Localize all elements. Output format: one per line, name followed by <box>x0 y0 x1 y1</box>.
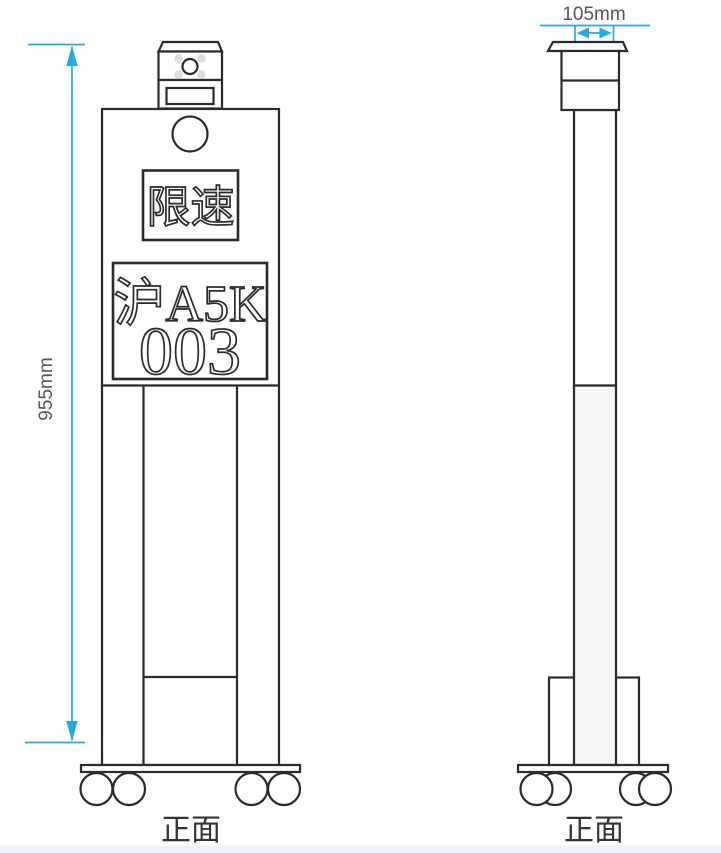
caster-wheel-front <box>639 773 671 805</box>
front-view: 955mm 限速 沪A5K 003 <box>25 42 300 847</box>
side-view-label: 正面 <box>564 814 624 847</box>
front-view-label: 正面 <box>161 814 221 847</box>
base-plate <box>81 765 300 772</box>
height-dimension: 955mm <box>25 45 85 743</box>
head-cap <box>159 42 223 52</box>
plate-line2-text: 003 <box>139 313 241 389</box>
pole-column <box>574 110 616 765</box>
caster-wheel <box>81 773 113 805</box>
camera-head-side <box>548 42 627 110</box>
ir-led-icon <box>197 70 205 78</box>
signal-light-circle <box>173 117 208 152</box>
caster-wheel <box>268 773 300 805</box>
speed-limit-sign: 限速 <box>143 171 238 241</box>
head-cap-side <box>548 42 627 51</box>
dimension-arrow-left-icon <box>577 28 590 39</box>
caster-wheel <box>236 773 268 805</box>
drawing-svg: 955mm 限速 沪A5K 003 <box>0 0 721 853</box>
dimension-arrow-down-icon <box>66 721 77 742</box>
dimension-arrow-up-icon <box>66 46 77 67</box>
camera-head <box>159 42 223 109</box>
ir-led-icon <box>197 54 205 62</box>
width-dimension-label: 105mm <box>562 4 625 25</box>
side-view: 105mm 正面 <box>518 4 671 847</box>
ir-led-icon <box>174 70 182 78</box>
caster-wheel <box>113 773 145 805</box>
caster-wheel-front <box>521 773 553 805</box>
height-dimension-label: 955mm <box>36 357 57 420</box>
technical-drawing-canvas: 955mm 限速 沪A5K 003 <box>0 0 721 853</box>
footer-strip <box>0 846 721 853</box>
pole-fill-lower <box>575 387 615 765</box>
ir-led-icon <box>174 54 182 62</box>
speed-sign-text: 限速 <box>147 183 235 232</box>
camera-lens-icon <box>183 59 198 74</box>
base-plate-side <box>518 765 668 772</box>
license-plate-panel: 沪A5K 003 <box>113 263 267 389</box>
dimension-arrow-right-icon <box>600 28 613 39</box>
